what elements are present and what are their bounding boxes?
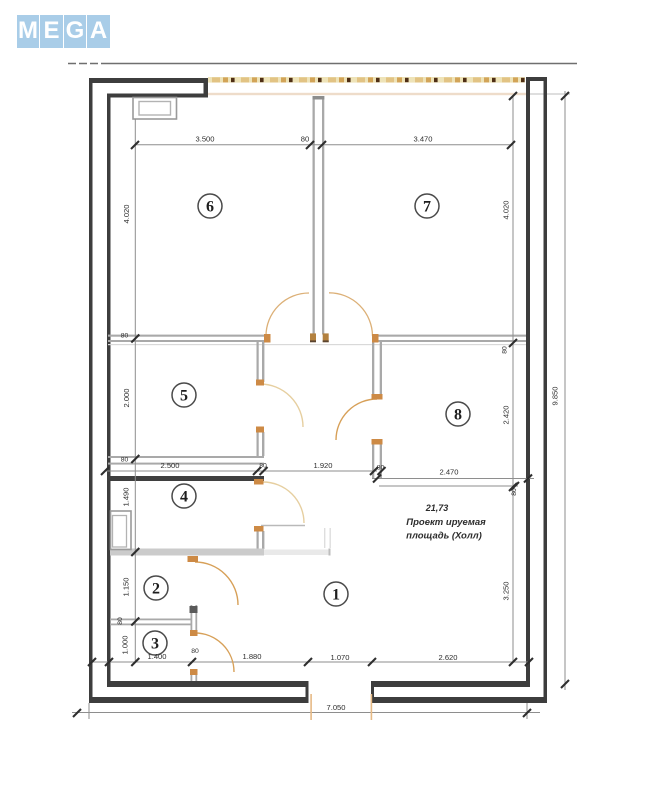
svg-text:80: 80 <box>511 488 518 496</box>
svg-text:2.420: 2.420 <box>502 405 511 424</box>
svg-text:1.490: 1.490 <box>122 487 131 506</box>
svg-text:3.470: 3.470 <box>413 135 432 144</box>
svg-text:80: 80 <box>117 617 124 625</box>
svg-text:площадь (Холл): площадь (Холл) <box>406 531 482 542</box>
svg-text:7: 7 <box>423 199 431 216</box>
svg-text:Проект ируемая: Проект ируемая <box>406 517 486 528</box>
svg-text:2.470: 2.470 <box>439 468 458 477</box>
svg-text:1: 1 <box>332 587 340 604</box>
svg-text:9.850: 9.850 <box>551 386 560 405</box>
svg-text:1.400: 1.400 <box>147 652 166 661</box>
svg-text:80: 80 <box>502 346 509 354</box>
svg-text:4.020: 4.020 <box>502 200 511 219</box>
svg-text:2.620: 2.620 <box>438 653 457 662</box>
svg-text:4: 4 <box>180 489 188 506</box>
svg-text:5: 5 <box>180 388 188 405</box>
svg-text:80: 80 <box>121 457 129 464</box>
svg-text:3.250: 3.250 <box>502 581 511 600</box>
svg-text:4.020: 4.020 <box>122 204 131 223</box>
svg-text:3: 3 <box>151 636 159 653</box>
svg-text:80: 80 <box>259 463 267 470</box>
svg-text:80: 80 <box>121 333 129 340</box>
svg-text:21,73: 21,73 <box>425 503 449 513</box>
svg-text:1.880: 1.880 <box>242 652 261 661</box>
svg-text:2.000: 2.000 <box>122 388 131 407</box>
svg-text:3.500: 3.500 <box>195 135 214 144</box>
svg-text:7.050: 7.050 <box>326 703 345 712</box>
svg-text:80: 80 <box>301 135 309 144</box>
svg-text:1.150: 1.150 <box>122 577 131 596</box>
svg-text:2.500: 2.500 <box>160 461 179 470</box>
svg-text:2: 2 <box>152 581 160 598</box>
svg-text:6: 6 <box>206 199 214 216</box>
svg-text:1.000: 1.000 <box>121 635 130 654</box>
svg-text:1.070: 1.070 <box>330 653 349 662</box>
svg-text:1.920: 1.920 <box>313 461 332 470</box>
svg-text:8: 8 <box>454 407 462 424</box>
svg-text:80: 80 <box>377 465 385 472</box>
svg-text:80: 80 <box>191 648 199 655</box>
